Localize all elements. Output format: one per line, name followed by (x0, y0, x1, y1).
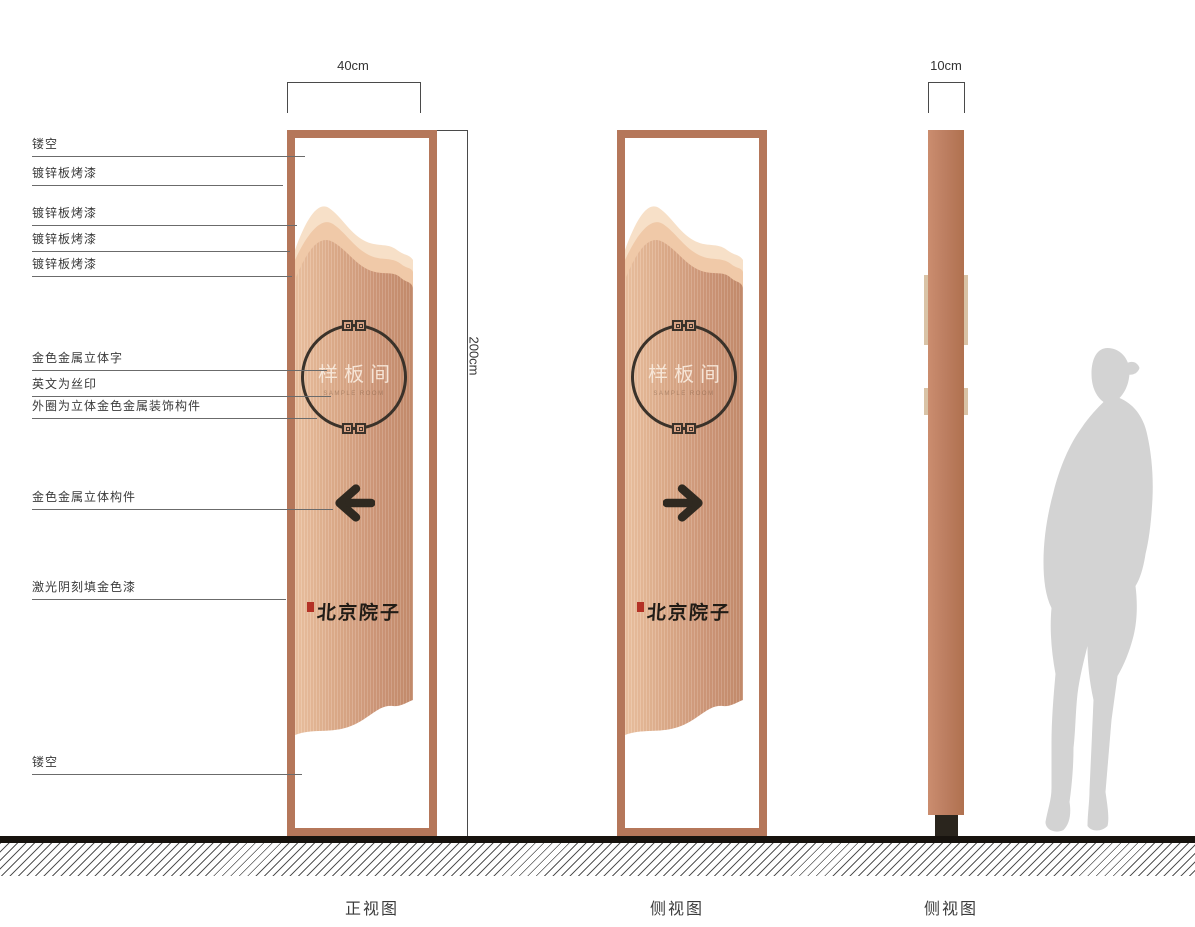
drawing-canvas: 镂空 镀锌板烤漆 镀锌板烤漆 镀锌板烤漆 镀锌板烤漆 金色金属立体字 英文为丝印… (0, 0, 1195, 927)
plaque-circle: 样板间 SAMPLE ROOM (631, 324, 737, 430)
ornament-top-icon (672, 320, 696, 331)
callout-label: 外圈为立体金色金属装饰构件 (32, 399, 201, 413)
ground-hatch (0, 843, 1195, 876)
callout-galvanized-2: 镀锌板烤漆 (32, 204, 297, 226)
callout-label: 金色金属立体构件 (32, 490, 136, 504)
brand-logo: 北京院子 (307, 598, 401, 625)
ornament-bottom-icon (672, 423, 696, 434)
callout-label: 镀锌板烤漆 (32, 257, 97, 271)
callout-silkscreen: 英文为丝印 (32, 375, 331, 397)
sign-side: 样板间 SAMPLE ROOM 北京院子 (617, 130, 767, 836)
mountain-panel-graphic (295, 138, 413, 812)
sign-front: 样板间 SAMPLE ROOM 北京院子 (287, 130, 437, 836)
callout-galvanized-3: 镀锌板烤漆 (32, 230, 290, 252)
plaque-subtitle: SAMPLE ROOM (653, 391, 714, 397)
plaque-title: 样板间 (642, 358, 726, 387)
brand-seal-icon (637, 602, 644, 612)
callout-label: 金色金属立体字 (32, 351, 123, 365)
callout-hollow-top: 镂空 (32, 135, 305, 157)
mountain-panel-graphic (625, 138, 743, 812)
callout-label: 镀锌板烤漆 (32, 166, 97, 180)
callout-galvanized-1: 镀锌板烤漆 (32, 164, 283, 186)
callout-gold-ring: 外圈为立体金色金属装饰构件 (32, 397, 317, 419)
callout-laser-engrave: 激光阴刻填金色漆 (32, 578, 286, 600)
callout-label: 镀锌板烤漆 (32, 232, 97, 246)
view-label-profile: 侧视图 (924, 895, 978, 919)
view-label-front: 正视图 (345, 895, 399, 919)
arrow-right-icon (663, 483, 705, 523)
dim-bracket-profile-width (928, 82, 965, 113)
callout-label: 英文为丝印 (32, 377, 97, 391)
person-silhouette (1035, 340, 1170, 840)
callout-label: 镂空 (32, 137, 58, 151)
brand-logo: 北京院子 (637, 598, 731, 625)
ornament-top-icon (342, 320, 366, 331)
brand-name: 北京院子 (646, 598, 732, 625)
dim-bracket-front-width (287, 82, 421, 113)
brand-name: 北京院子 (316, 598, 402, 625)
brand-seal-icon (307, 602, 314, 612)
view-label-side: 侧视图 (650, 895, 704, 919)
callout-label: 镂空 (32, 755, 58, 769)
callout-gold-component: 金色金属立体构件 (32, 488, 333, 510)
callout-label: 镀锌板烤漆 (32, 206, 97, 220)
dim-height-line (467, 130, 468, 836)
arrow-left-icon (333, 483, 375, 523)
callout-galvanized-4: 镀锌板烤漆 (32, 255, 292, 277)
callout-gold-letters: 金色金属立体字 (32, 349, 327, 371)
ornament-bottom-icon (342, 423, 366, 434)
ground-line (0, 836, 1195, 843)
dim-height: 200cm (467, 336, 482, 375)
sign-profile (928, 130, 964, 815)
callout-hollow-bottom: 镂空 (32, 753, 302, 775)
callout-label: 激光阴刻填金色漆 (32, 580, 136, 594)
plaque-subtitle: SAMPLE ROOM (323, 391, 384, 397)
dim-profile-width: 10cm (930, 58, 962, 73)
dim-front-width: 40cm (337, 58, 369, 73)
